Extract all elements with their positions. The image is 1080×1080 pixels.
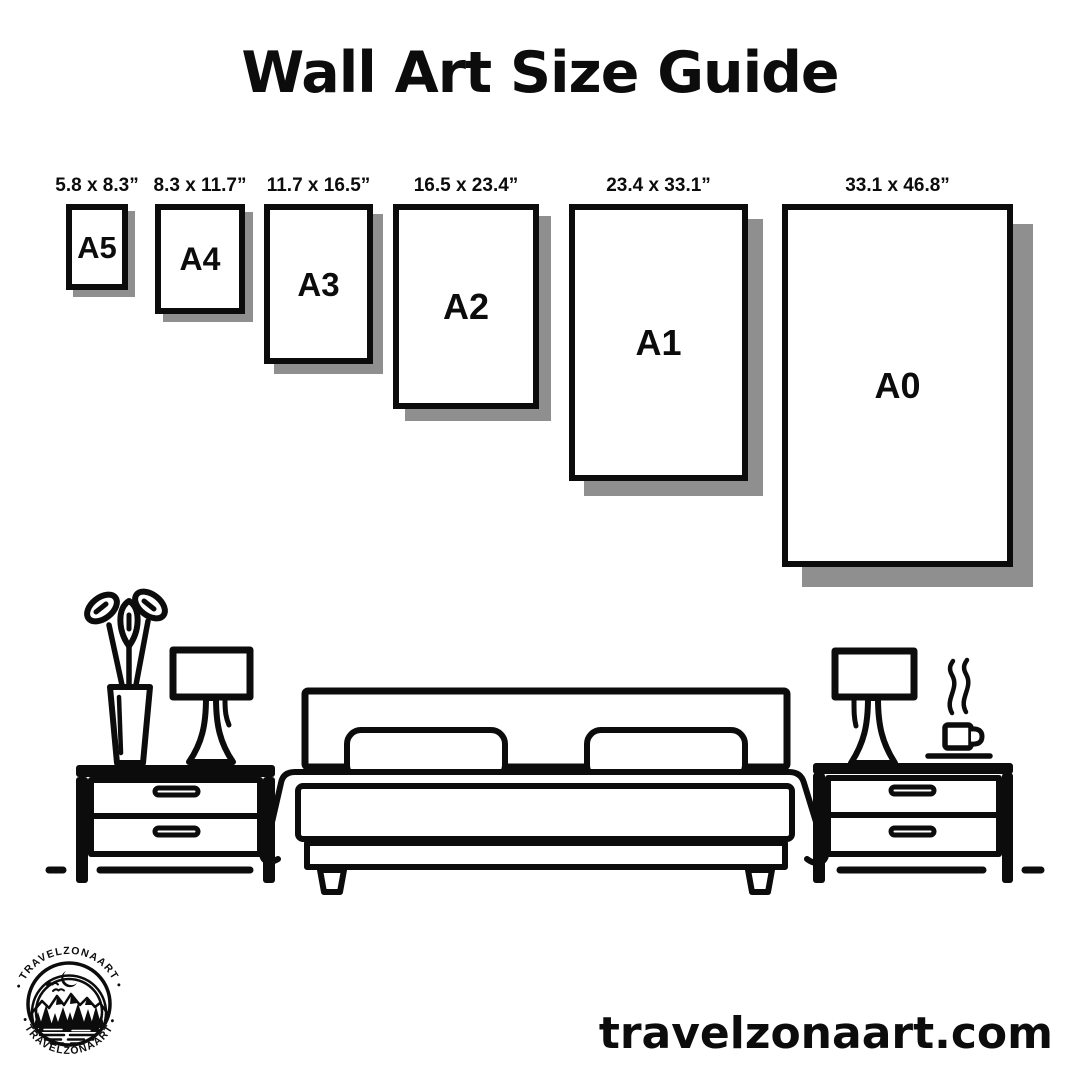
- size-item-a5: 5.8 x 8.3” A5: [66, 204, 128, 290]
- paper-a3: A3: [264, 204, 373, 364]
- lamp-shade: [835, 651, 914, 697]
- vase-body: [110, 687, 150, 763]
- size-dimensions-label: 16.5 x 23.4”: [414, 175, 519, 197]
- size-item-a0: 33.1 x 46.8” A0: [782, 204, 1013, 567]
- table-lamp-left: [173, 650, 250, 762]
- size-item-a4: 8.3 x 11.7” A4: [155, 204, 245, 314]
- size-dimensions-label: 33.1 x 46.8”: [845, 175, 950, 197]
- size-item-a1: 23.4 x 33.1” A1: [569, 204, 748, 481]
- size-code-label: A3: [297, 268, 339, 301]
- size-dimensions-label: 23.4 x 33.1”: [606, 175, 711, 197]
- website-url: travelzonaart.com: [599, 1008, 1053, 1059]
- size-dimensions-label: 11.7 x 16.5”: [267, 175, 371, 197]
- wall-art-size-guide-poster: Wall Art Size Guide 5.8 x 8.3” A5 8.3 x …: [0, 0, 1080, 1080]
- paper-a4: A4: [155, 204, 245, 314]
- size-dimensions-label: 5.8 x 8.3”: [55, 175, 138, 197]
- nightstand-left: [79, 768, 272, 880]
- steaming-coffee-cup: [928, 660, 990, 756]
- paper-a2: A2: [393, 204, 539, 409]
- size-code-label: A5: [77, 232, 117, 263]
- bird-icon: [53, 989, 64, 991]
- table-lamp-right: [835, 651, 914, 763]
- size-item-a3: 11.7 x 16.5” A3: [264, 204, 373, 364]
- size-dimensions-label: 8.3 x 11.7”: [154, 175, 247, 197]
- page-title: Wall Art Size Guide: [0, 40, 1080, 106]
- size-item-a2: 16.5 x 23.4” A2: [393, 204, 539, 409]
- size-code-label: A0: [874, 368, 920, 404]
- lamp-shade: [173, 650, 250, 697]
- size-code-label: A4: [180, 243, 221, 275]
- nightstand-right: [816, 766, 1010, 880]
- bed-base: [307, 843, 785, 867]
- bed-leg: [320, 870, 344, 892]
- cup: [945, 725, 971, 748]
- logo-ring-text-top: • TRAVELZONAART •: [13, 945, 125, 990]
- bedroom-illustration: [25, 585, 1050, 900]
- bed-leg: [748, 870, 772, 892]
- steam: [964, 660, 969, 712]
- steam: [950, 661, 955, 713]
- mattress: [298, 786, 792, 839]
- flower-vase: [82, 586, 170, 763]
- paper-a1: A1: [569, 204, 748, 481]
- paper-a0: A0: [782, 204, 1013, 567]
- size-code-label: A2: [443, 289, 489, 325]
- brand-logo: • TRAVELZONAART • • TRAVELZONAART •: [0, 935, 138, 1073]
- size-code-label: A1: [635, 325, 681, 361]
- lamp-stem: [851, 698, 895, 763]
- cup-handle: [971, 729, 982, 744]
- bird-icon: [47, 983, 58, 985]
- paper-a5: A5: [66, 204, 128, 290]
- double-bed: [262, 691, 826, 892]
